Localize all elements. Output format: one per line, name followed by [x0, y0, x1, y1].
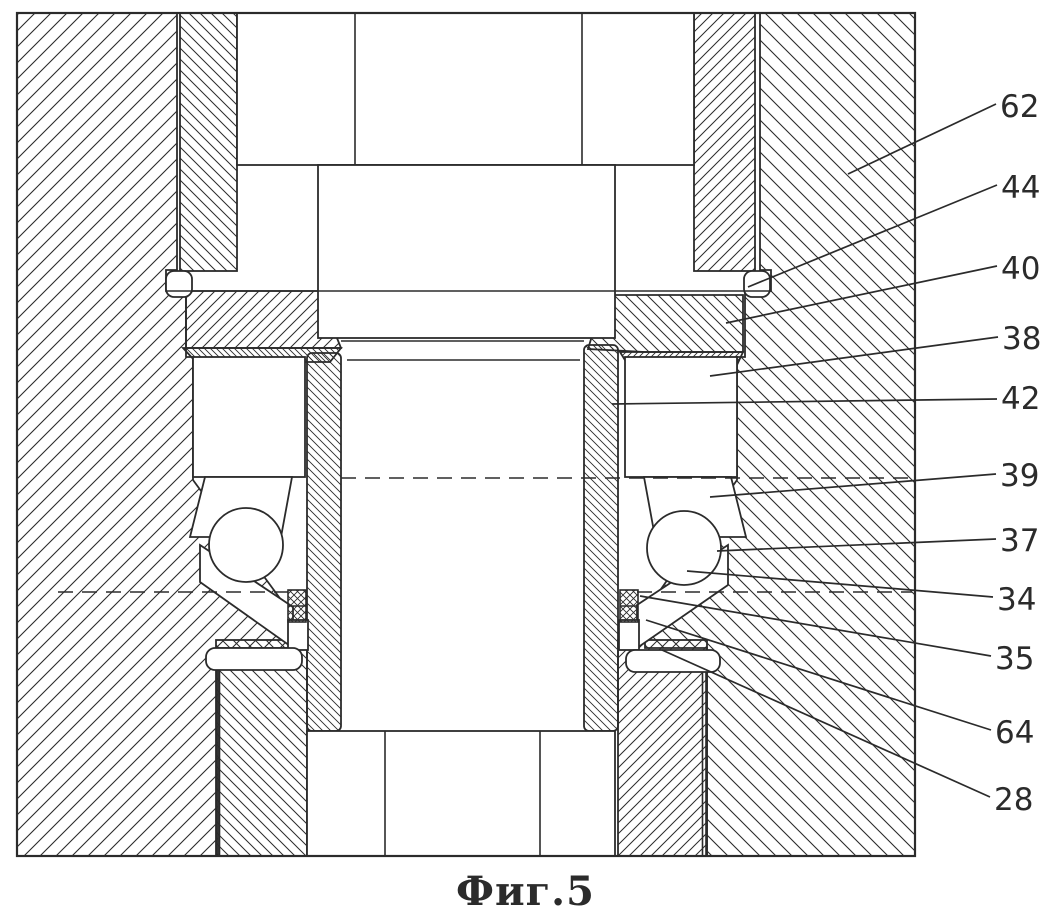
cage-follower-left	[193, 357, 305, 477]
figure-caption: Фиг.5	[0, 868, 1051, 915]
tube-wall-right-42	[584, 345, 618, 731]
patent-figure-5-drawing: 6244403842393734356428	[0, 0, 1051, 918]
part-number-38: 38	[1002, 321, 1041, 357]
top-stem-block	[237, 13, 694, 165]
part-number-42: 42	[1001, 381, 1040, 417]
ball-right-37	[647, 511, 721, 585]
bracket-right	[626, 650, 720, 672]
part-number-44: 44	[1001, 170, 1040, 206]
part-number-28: 28	[994, 782, 1033, 818]
bushing-column-left	[180, 13, 237, 271]
part-number-64: 64	[995, 715, 1034, 751]
patent-figure-page: 6244403842393734356428 Фиг.5	[0, 0, 1051, 918]
bottom-stem-block	[307, 731, 615, 856]
part-number-39: 39	[1000, 458, 1039, 494]
part-number-37: 37	[1000, 523, 1039, 559]
bushing-column-right	[694, 13, 755, 271]
pin-left	[166, 271, 192, 297]
ball-left	[209, 508, 283, 582]
part-number-40: 40	[1001, 251, 1040, 287]
tube-wall-left	[307, 353, 341, 731]
seal-step-left	[288, 620, 308, 650]
part-number-34: 34	[997, 582, 1036, 618]
lower-inner-body-left	[216, 640, 307, 856]
upper-piston	[318, 165, 615, 338]
seal-step-right-64	[619, 620, 639, 650]
part-number-35: 35	[995, 641, 1034, 677]
bracket-left	[206, 648, 302, 670]
part-number-62: 62	[1000, 89, 1039, 125]
